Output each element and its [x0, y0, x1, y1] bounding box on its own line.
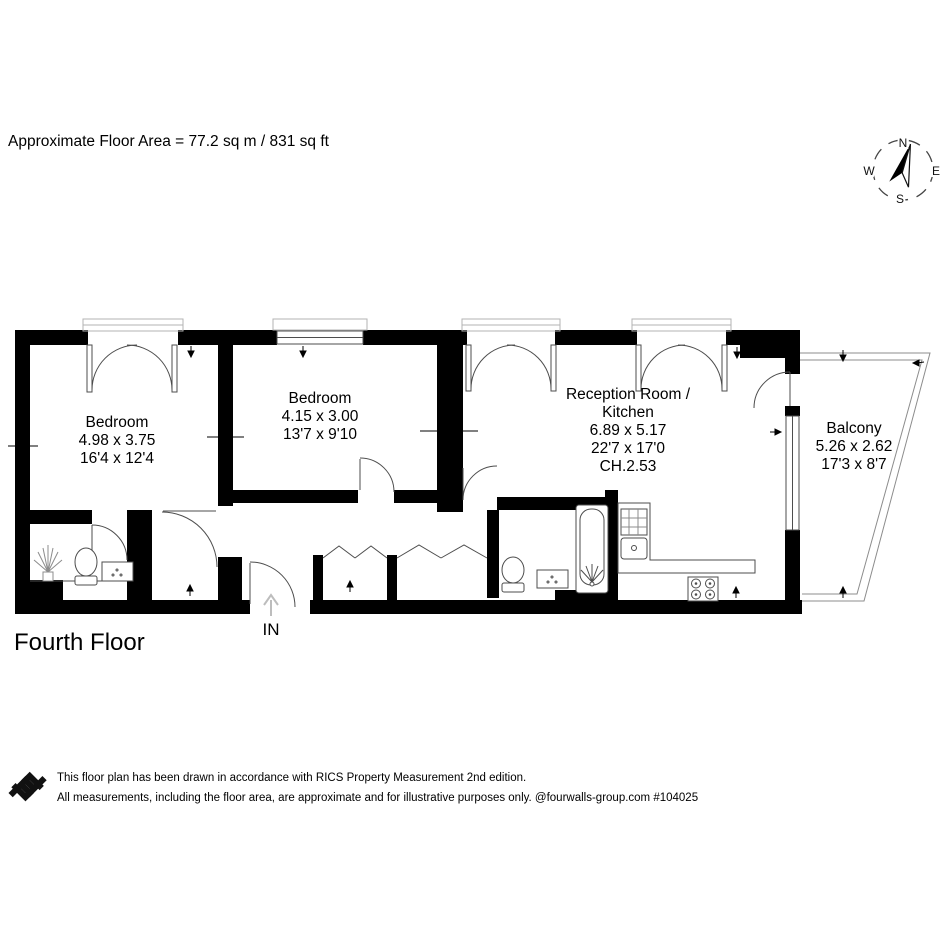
room-dimensions-imperial: 13'7 x 9'10: [240, 426, 400, 444]
room-name: Kitchen: [528, 404, 728, 422]
ceiling-height: CH.2.53: [528, 458, 728, 476]
compass-rose: N E S W: [863, 136, 940, 206]
ensuite-fixtures: [30, 545, 133, 585]
entrance-label: IN: [251, 620, 291, 640]
compass-w: W: [863, 164, 875, 178]
kitchen-fixtures: [618, 503, 755, 601]
kitchen-appliance-icon: [621, 509, 647, 535]
floor-title: Fourth Floor: [14, 629, 145, 657]
room-label-bedroom-1: Bedroom 4.98 x 3.75 16'4 x 12'4: [37, 414, 197, 468]
compass-s: S: [896, 192, 904, 206]
floor-area-note: Approximate Floor Area = 77.2 sq m / 831…: [8, 133, 329, 151]
ensuite-toilet-icon: [75, 548, 97, 585]
closet-bifold-doors: [323, 545, 487, 558]
compass-n: N: [899, 136, 908, 150]
room-name: Bedroom: [37, 414, 197, 432]
balcony-outline: [800, 353, 930, 601]
room-dimensions-metric: 5.26 x 2.62: [783, 438, 925, 456]
room-dimensions-imperial: 17'3 x 8'7: [783, 456, 925, 474]
french-doors: [87, 345, 727, 392]
room-dimensions-metric: 6.89 x 5.17: [528, 422, 728, 440]
room-name: Bedroom: [240, 390, 400, 408]
floor-plan-page: N E S W Approximate Floor Area = 77.2 sq…: [0, 0, 945, 945]
compass-e: E: [932, 164, 940, 178]
room-label-bedroom-2: Bedroom 4.15 x 3.00 13'7 x 9'10: [240, 390, 400, 444]
bathroom-toilet-icon: [502, 557, 524, 592]
plant-icon: [34, 545, 62, 581]
entrance-arrow-icon: [264, 595, 278, 616]
bathroom-basin-icon: [537, 570, 568, 588]
room-dimensions-metric: 4.98 x 3.75: [37, 432, 197, 450]
balcony-railings: [83, 319, 731, 331]
room-dimensions-imperial: 22'7 x 17'0: [528, 440, 728, 458]
window-bedroom-2: [277, 331, 363, 344]
ensuite-basin-icon: [102, 562, 133, 581]
room-dimensions-metric: 4.15 x 3.00: [240, 408, 400, 426]
fourwalls-logo: [7, 766, 48, 807]
room-label-reception-kitchen: Reception Room / Kitchen 6.89 x 5.17 22'…: [528, 386, 728, 476]
room-name: Reception Room /: [528, 386, 728, 404]
room-name: Balcony: [783, 420, 925, 438]
kitchen-sink-icon: [621, 538, 647, 559]
hob-icon: [688, 577, 718, 601]
bathroom-fixtures: [502, 505, 608, 593]
footer-disclaimer-line-2: All measurements, including the floor ar…: [57, 792, 698, 804]
footer-disclaimer-line-1: This floor plan has been drawn in accord…: [57, 772, 526, 784]
bathtub-icon: [576, 505, 608, 593]
room-dimensions-imperial: 16'4 x 12'4: [37, 450, 197, 468]
room-label-balcony: Balcony 5.26 x 2.62 17'3 x 8'7: [783, 420, 925, 474]
